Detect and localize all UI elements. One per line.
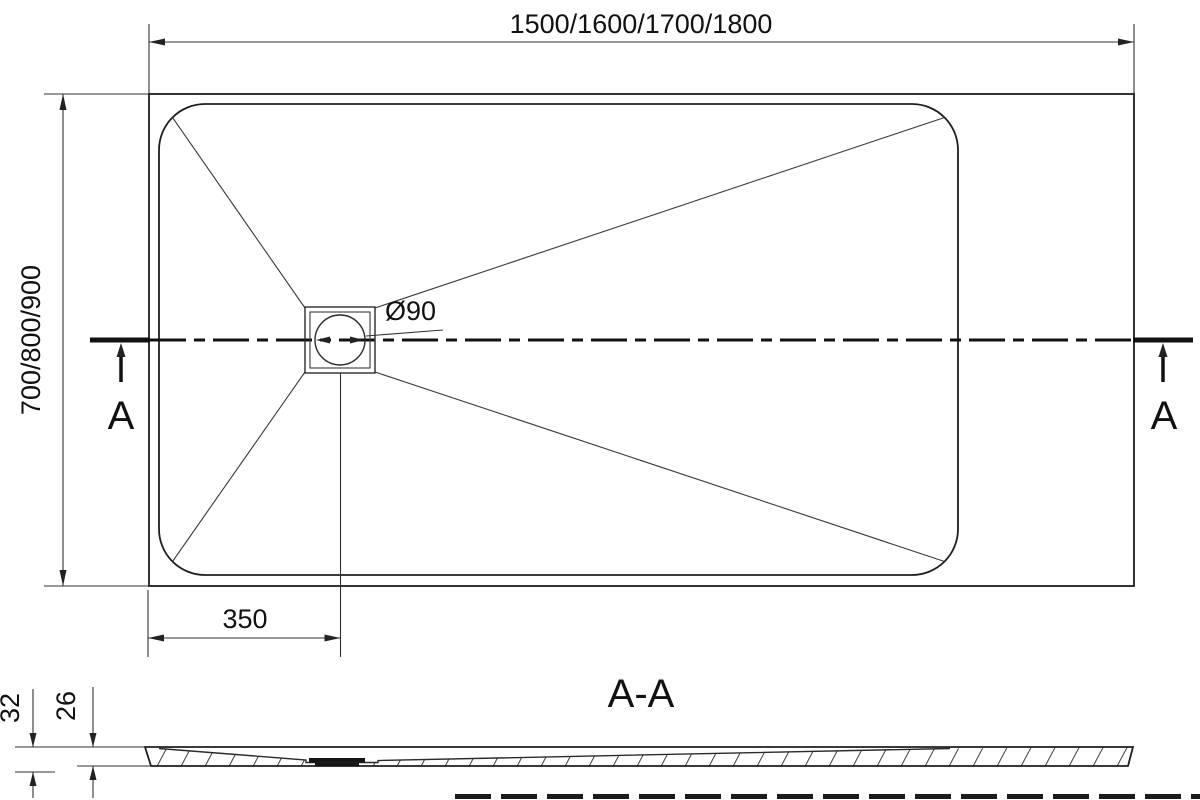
drain-body-bar	[315, 763, 359, 767]
dim-arrow-right	[1118, 39, 1134, 46]
hatch-line	[1138, 742, 1154, 772]
section-drain-assembly	[309, 758, 365, 767]
tray-height-label: 26	[51, 691, 81, 721]
dim-arrow-down	[30, 733, 37, 747]
tray-height-dimension: 26	[51, 687, 151, 798]
section-marker-right-label: A	[1151, 394, 1178, 438]
overall-height-label: 32	[0, 693, 25, 723]
dim-arrow-left	[149, 39, 165, 46]
drain-offset-label: 350	[222, 604, 267, 634]
section-marker-left: A	[108, 343, 135, 438]
section-title: A-A	[608, 672, 675, 716]
dim-arrow-down	[60, 570, 67, 586]
section-arrow-right	[1159, 343, 1168, 357]
dim-arrow-down	[90, 733, 97, 747]
dim-arrow-up	[90, 766, 97, 780]
drain-offset-dimension: 350	[148, 373, 341, 657]
diameter-arrow-left	[316, 337, 330, 344]
section-view: A-A 32	[0, 672, 1200, 798]
width-dimension-label: 700/800/900	[16, 265, 46, 415]
plan-view: 1500/1600/1700/1800 700/800/900	[16, 9, 1193, 657]
dim-arrow-right	[325, 635, 341, 642]
drain: Ø90	[305, 296, 443, 373]
section-marker-left-label: A	[108, 394, 135, 438]
drain-cover-bar	[309, 758, 365, 763]
section-floor-slope	[159, 749, 950, 763]
dim-arrow-up	[60, 94, 67, 110]
length-dimension: 1500/1600/1700/1800	[149, 9, 1134, 94]
section-arrow-left	[117, 343, 126, 357]
diameter-arrow-right	[350, 337, 364, 344]
length-dimension-label: 1500/1600/1700/1800	[510, 9, 773, 39]
dim-arrow-up	[30, 772, 37, 786]
technical-drawing: 1500/1600/1700/1800 700/800/900	[0, 0, 1200, 800]
dim-arrow-left	[148, 635, 164, 642]
drain-diameter-label: Ø90	[385, 296, 436, 326]
section-marker-right: A	[1151, 343, 1178, 438]
